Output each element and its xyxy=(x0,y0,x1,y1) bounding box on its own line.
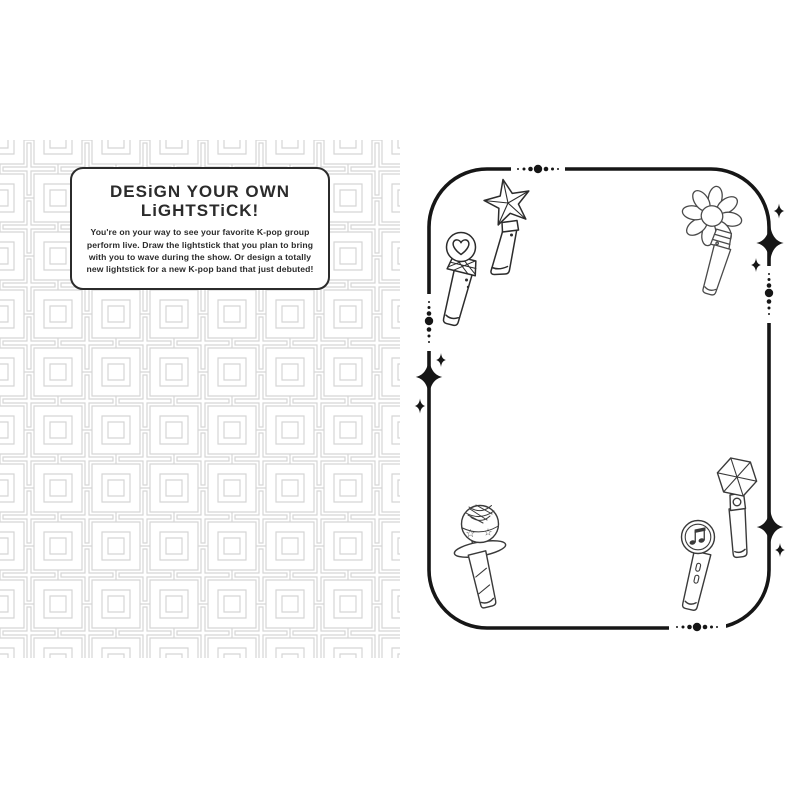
sparkle-icon xyxy=(415,399,426,414)
sparkle-icon xyxy=(775,543,785,557)
book-spread: DESiGN YOUR OWN LiGHTSTiCK! You're on yo… xyxy=(0,0,800,800)
star-outline-glyph: ☆ xyxy=(484,528,493,539)
sparkle-icon xyxy=(774,204,785,219)
right-page: ☆ ☆ xyxy=(0,0,800,800)
star-outline-glyph: ☆ xyxy=(466,527,476,540)
